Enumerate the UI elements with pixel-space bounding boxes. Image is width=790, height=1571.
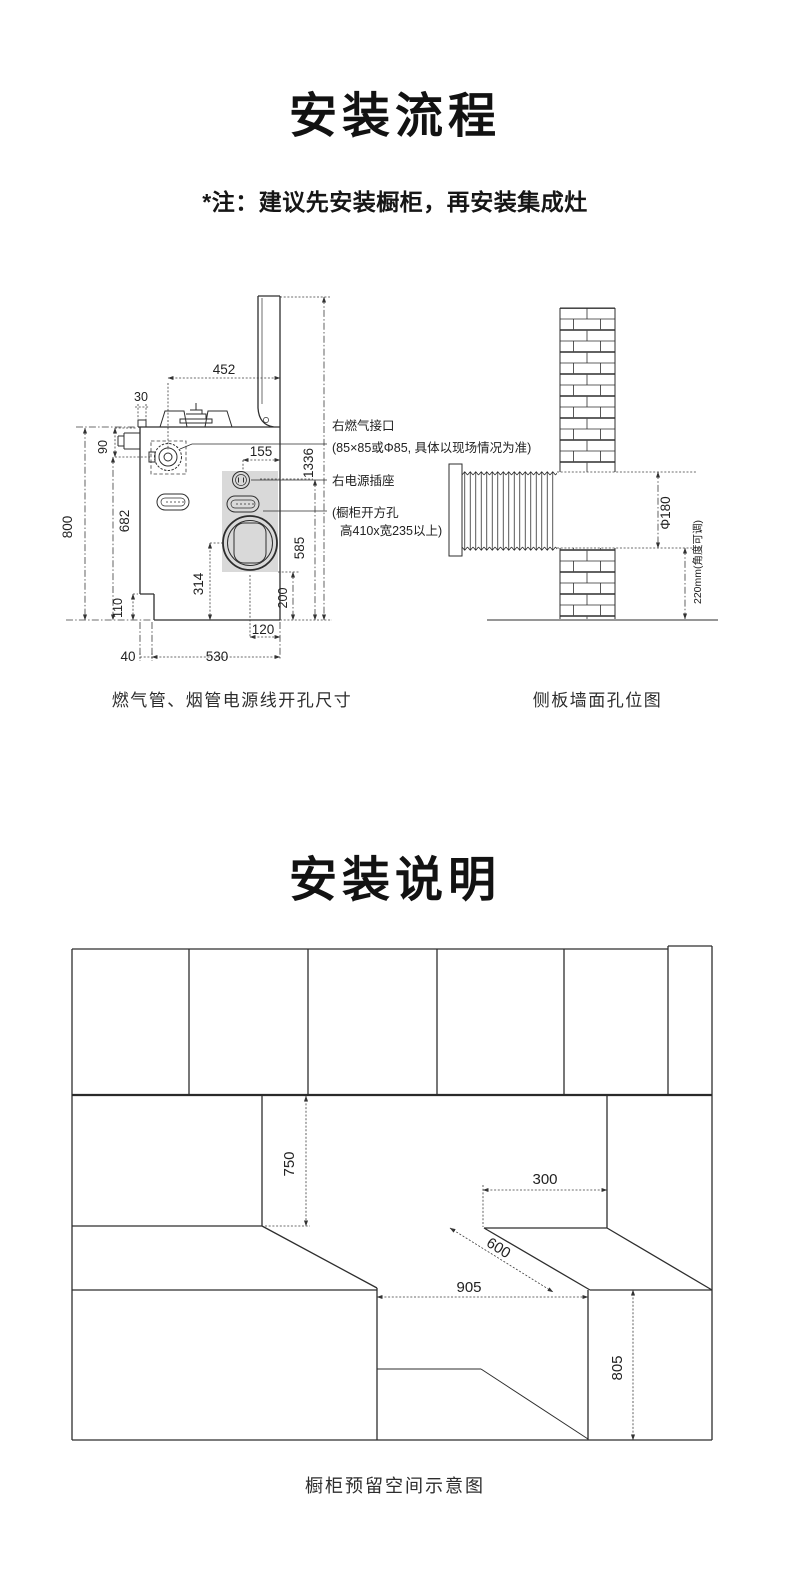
dim-682: 682 <box>117 510 132 533</box>
space-dimension-texts: 750 300 600 905 805 <box>281 1151 626 1380</box>
dim-40: 40 <box>120 649 135 664</box>
label-cabinet-opening-1: (橱柜开方孔 <box>332 505 399 520</box>
burner-profile <box>160 403 232 427</box>
dim-90: 90 <box>96 440 110 454</box>
left-vent-slot <box>157 494 189 510</box>
caption-cabinet-space: 橱柜预留空间示意图 <box>0 1472 790 1498</box>
label-gas-inlet-note: (85×85或Φ85, 具体以现场情况为准) <box>332 441 531 455</box>
dim-585: 585 <box>292 537 307 560</box>
stove-cutout-drawing: 452 30 90 800 682 110 155 1336 585 314 2… <box>60 296 531 664</box>
cabinet-opening-zone <box>222 471 278 572</box>
dim-300: 300 <box>532 1171 557 1188</box>
brick-wall <box>560 308 615 619</box>
dim-110: 110 <box>111 598 125 618</box>
dim-120: 120 <box>252 622 275 637</box>
dim-200: 200 <box>276 588 290 609</box>
dim-30: 30 <box>134 390 148 404</box>
cabinet-space-diagram: 750 300 600 905 805 <box>0 940 790 1455</box>
section-title-install-process: 安装流程 <box>0 76 790 146</box>
dim-155: 155 <box>250 444 273 459</box>
dim-314: 314 <box>191 572 206 595</box>
label-gas-inlet: 右燃气接口 <box>332 418 395 433</box>
section-title-install-notes: 安装说明 <box>0 840 790 910</box>
label-power-socket: 右电源插座 <box>332 473 395 488</box>
dim-750: 750 <box>281 1151 298 1176</box>
wall-hole-drawing: Φ180 220mm(角度可调) <box>449 308 718 620</box>
exhaust-duct <box>449 464 557 556</box>
label-cabinet-opening-2: 高410x宽235以上) <box>340 523 442 538</box>
space-dimension-lines <box>265 1096 633 1440</box>
dim-800: 800 <box>60 516 75 539</box>
cutout-and-wall-diagram: 452 30 90 800 682 110 155 1336 585 314 2… <box>0 280 790 680</box>
dim-905: 905 <box>456 1279 481 1296</box>
cutout-dimension-lines <box>66 297 332 661</box>
dim-hole-height: 220mm(角度可调) <box>691 520 704 604</box>
install-note: *注：建议先安装橱柜，再安装集成灶 <box>0 183 790 217</box>
dim-hole-diameter: Φ180 <box>658 496 673 529</box>
product-install-page: 安装流程 *注：建议先安装橱柜，再安装集成灶 <box>0 0 790 1571</box>
gas-inlet-valve <box>149 441 186 474</box>
dim-600: 600 <box>483 1234 513 1262</box>
caption-wall: 侧板墙面孔位图 <box>495 686 700 711</box>
dim-530: 530 <box>206 649 229 664</box>
caption-cutout: 燃气管、烟管电源线开孔尺寸 <box>97 686 367 711</box>
dim-452: 452 <box>213 362 236 377</box>
dim-805: 805 <box>609 1355 626 1380</box>
dim-1336: 1336 <box>301 448 316 478</box>
